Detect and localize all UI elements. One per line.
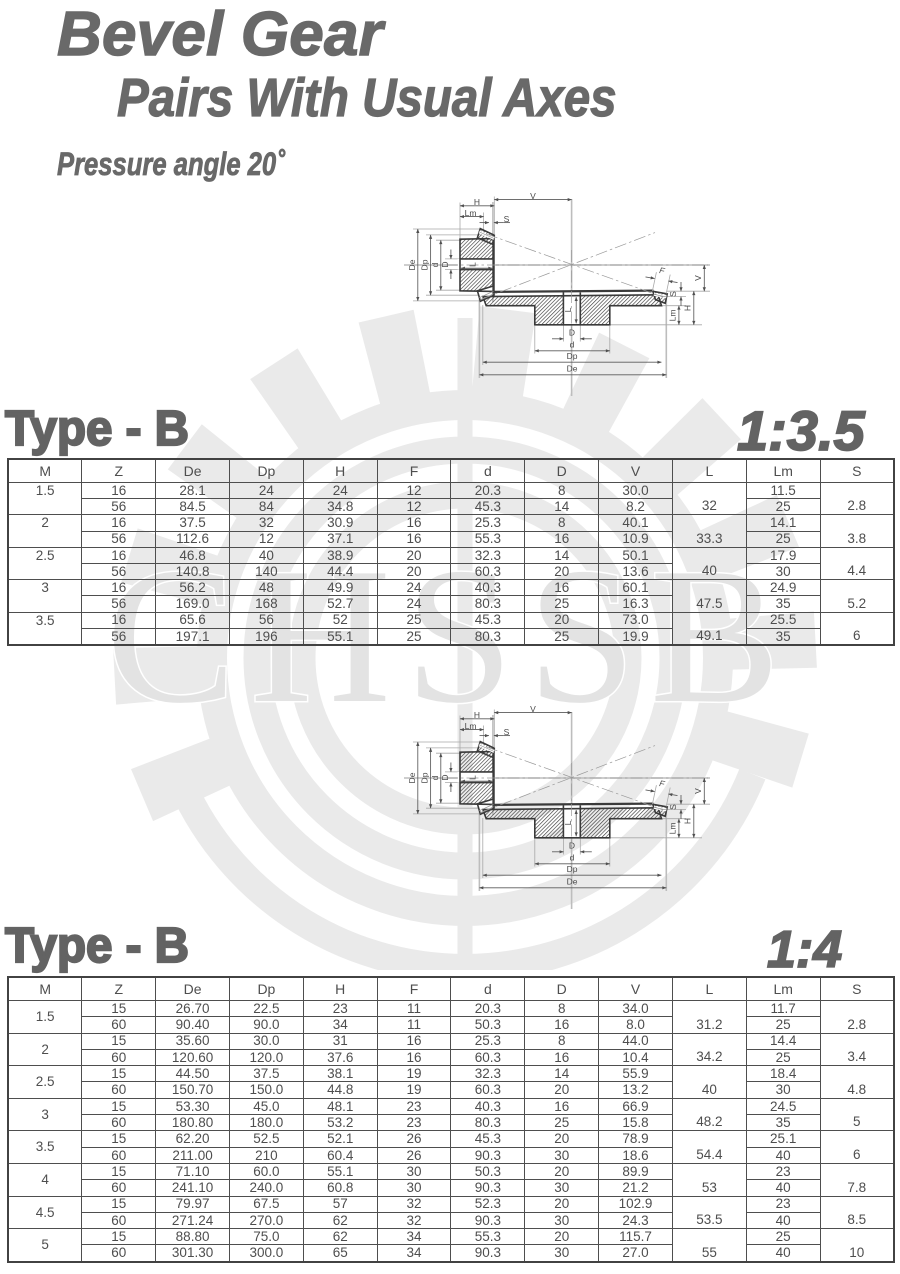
- svg-text:V: V: [693, 275, 703, 281]
- svg-text:Dp: Dp: [567, 351, 578, 361]
- svg-text:S: S: [668, 291, 678, 297]
- svg-text:Lm: Lm: [465, 208, 477, 218]
- svg-text:De: De: [407, 259, 417, 270]
- svg-text:S: S: [504, 214, 510, 224]
- svg-text:Dp: Dp: [420, 259, 430, 270]
- svg-text:V: V: [530, 191, 536, 201]
- svg-text:De: De: [567, 364, 578, 374]
- svg-text:d: d: [430, 262, 440, 267]
- svg-text:d: d: [570, 340, 575, 350]
- svg-text:D: D: [440, 261, 450, 267]
- svg-text:L: L: [563, 307, 573, 312]
- svg-text:Lm: Lm: [668, 310, 678, 322]
- svg-text:H: H: [474, 197, 480, 207]
- svg-text:L: L: [468, 262, 478, 267]
- svg-text:F: F: [659, 265, 667, 276]
- svg-text:D: D: [569, 328, 575, 338]
- svg-text:H: H: [682, 305, 692, 311]
